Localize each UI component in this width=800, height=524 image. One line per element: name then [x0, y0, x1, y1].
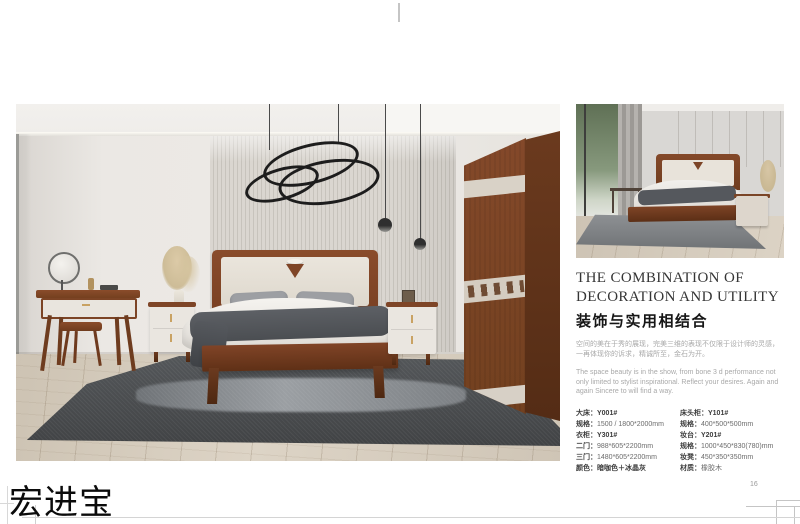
bottom-cut-line	[22, 517, 800, 518]
headboard-emblem-triangle	[693, 162, 703, 170]
vanity-drawer	[41, 298, 137, 319]
spec-row: 规格：1000*450*830(780)mm	[680, 441, 784, 452]
description-en: The space beauty is in the show, from bo…	[576, 368, 784, 397]
pampas-plant	[176, 256, 200, 292]
crop-mark-bottom-right-v1	[776, 500, 777, 524]
spec-row: 大床：Y001#	[576, 408, 680, 419]
headboard-emblem-triangle	[286, 264, 304, 278]
spec-row: 材质：橡胶木	[680, 463, 784, 474]
bed-leg	[373, 366, 385, 398]
drawer-handle	[411, 315, 413, 323]
wardrobe-band-pattern	[468, 280, 525, 298]
wardrobe-side-face	[525, 131, 560, 421]
side-table-leg	[612, 191, 614, 213]
spec-row: 床头柜：Y101#	[680, 408, 784, 419]
page-number: 16	[750, 481, 758, 488]
spec-column-left: 大床：Y001# 规格：1500 / 1800*2000mm 衣柜：Y301# …	[576, 408, 680, 474]
crop-mark-bottom-right-v2	[794, 506, 795, 524]
vanity-mirror	[48, 252, 80, 284]
nightstand-left-top	[148, 302, 196, 307]
ball-pendant-lamp	[414, 238, 426, 250]
spec-row: 规格：1500 / 1800*2000mm	[576, 419, 680, 430]
crop-mark-bottom-right-h2	[746, 506, 800, 507]
bed-leg	[207, 368, 219, 404]
left-curtain-edge	[16, 134, 31, 360]
vanity-mirror-stand	[61, 280, 63, 290]
nightstand-right	[388, 306, 436, 354]
wardrobe-top-band	[461, 175, 528, 199]
drawer-handle	[170, 314, 172, 322]
crop-mark-top	[398, 3, 400, 22]
spec-row: 二门：988*605*2200mm	[576, 441, 680, 452]
chandelier-cord	[269, 104, 270, 150]
nightstand-leg	[426, 354, 430, 365]
info-panel: THE COMBINATION OF DECORATION AND UTILIT…	[576, 104, 784, 474]
ceiling-right	[386, 104, 560, 132]
crop-mark-bottom-left-v	[7, 486, 8, 524]
spec-row: 三门：1480*605*2200mm	[576, 452, 680, 463]
catalog-page: THE COMBINATION OF DECORATION AND UTILIT…	[0, 0, 800, 524]
vanity-handle	[82, 304, 90, 306]
crop-mark-bottom-right-h1	[776, 500, 800, 501]
pampas-plant	[760, 160, 776, 192]
window-green-view	[576, 104, 621, 224]
bed-footboard	[202, 342, 398, 371]
drawer-handle	[411, 336, 413, 344]
spec-row: 规格：400*500*500mm	[680, 419, 784, 430]
nightstand-leg	[392, 354, 396, 365]
ball-pendant-cord	[420, 104, 421, 240]
spec-column-right: 床头柜：Y101# 规格：400*500*500mm 妆台：Y201# 规格：1…	[680, 408, 784, 474]
nightstand-right-top	[386, 302, 438, 307]
ball-pendant-lamp	[378, 218, 392, 232]
description-cn: 空间的美在于秀的展现，完美三维的表现不仅限于设计师的灵感，一再体现你的诉求，精诚…	[576, 340, 784, 359]
brand-logo-text: 宏进宝	[9, 475, 114, 524]
spec-row: 妆凳：450*350*350mm	[680, 452, 784, 463]
vanity-table-top	[36, 290, 140, 298]
bed-frame-rail	[628, 205, 746, 222]
spec-row: 颜色：暗咖色＋冰晶灰	[576, 463, 680, 474]
nightstand-leg	[154, 352, 158, 362]
ball-pendant-cord	[385, 104, 386, 220]
wardrobe-front-face	[464, 138, 526, 414]
nightstand	[736, 196, 768, 226]
title-line-2: DECORATION AND UTILITY	[576, 288, 784, 307]
section-title: THE COMBINATION OF DECORATION AND UTILIT…	[576, 269, 784, 307]
section-subtitle-cn: 装饰与实用相结合	[576, 310, 784, 331]
chandelier-cord	[338, 104, 339, 144]
wardrobe-middle-band	[461, 275, 529, 304]
drawer-handle	[170, 334, 172, 342]
spec-row: 妆台：Y201#	[680, 430, 784, 441]
figurine-decor	[88, 278, 94, 290]
small-photo	[576, 104, 784, 258]
spec-row: 衣柜：Y301#	[576, 430, 680, 441]
spec-table: 大床：Y001# 规格：1500 / 1800*2000mm 衣柜：Y301# …	[576, 408, 784, 474]
main-photo	[16, 104, 560, 461]
title-line-1: THE COMBINATION OF	[576, 269, 784, 288]
drawer-divider	[391, 329, 433, 330]
window-mullion	[584, 104, 586, 224]
